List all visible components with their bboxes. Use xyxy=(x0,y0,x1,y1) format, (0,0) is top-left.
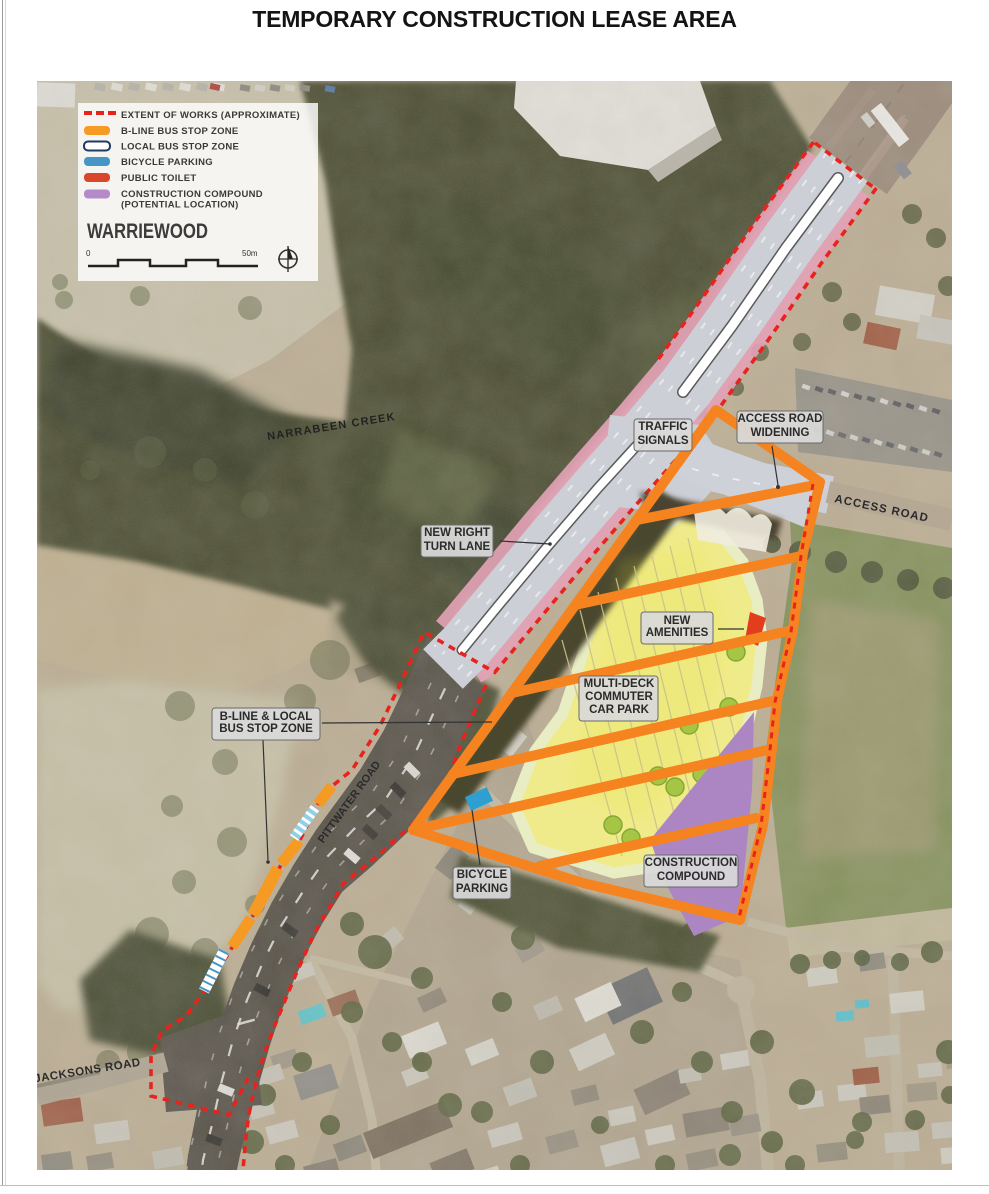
svg-text:ACCESS ROAD: ACCESS ROAD xyxy=(738,413,823,425)
svg-text:EXTENT OF WORKS (APPROXIMATE): EXTENT OF WORKS (APPROXIMATE) xyxy=(121,110,300,121)
svg-text:MULTI-DECK: MULTI-DECK xyxy=(584,678,655,690)
svg-text:NEW RIGHT: NEW RIGHT xyxy=(424,527,490,539)
svg-text:(POTENTIAL LOCATION): (POTENTIAL LOCATION) xyxy=(121,200,239,211)
svg-text:CAR PARK: CAR PARK xyxy=(589,704,650,716)
svg-text:PARKING: PARKING xyxy=(456,883,508,895)
svg-text:SIGNALS: SIGNALS xyxy=(637,435,688,447)
svg-text:COMMUTER: COMMUTER xyxy=(585,691,653,703)
svg-text:B-LINE & LOCAL: B-LINE & LOCAL xyxy=(220,711,313,723)
svg-text:LOCAL BUS STOP ZONE: LOCAL BUS STOP ZONE xyxy=(121,142,239,153)
svg-text:CONSTRUCTION COMPOUND: CONSTRUCTION COMPOUND xyxy=(121,189,263,200)
svg-text:COMPOUND: COMPOUND xyxy=(657,871,725,883)
svg-text:BICYCLE PARKING: BICYCLE PARKING xyxy=(121,157,213,168)
svg-text:PUBLIC TOILET: PUBLIC TOILET xyxy=(121,173,197,184)
svg-text:TURN LANE: TURN LANE xyxy=(424,541,491,553)
svg-text:WARRIEWOOD: WARRIEWOOD xyxy=(87,220,208,243)
svg-text:WIDENING: WIDENING xyxy=(751,427,810,439)
svg-text:B-LINE BUS STOP ZONE: B-LINE BUS STOP ZONE xyxy=(121,126,239,137)
svg-text:AMENITIES: AMENITIES xyxy=(646,627,709,639)
svg-text:0: 0 xyxy=(86,249,91,258)
svg-text:TRAFFIC: TRAFFIC xyxy=(638,421,687,433)
svg-text:NEW: NEW xyxy=(664,615,691,627)
svg-text:BUS STOP ZONE: BUS STOP ZONE xyxy=(219,723,313,735)
svg-text:CONSTRUCTION: CONSTRUCTION xyxy=(645,857,738,869)
svg-text:50m: 50m xyxy=(242,249,258,258)
svg-text:BICYCLE: BICYCLE xyxy=(457,869,508,881)
